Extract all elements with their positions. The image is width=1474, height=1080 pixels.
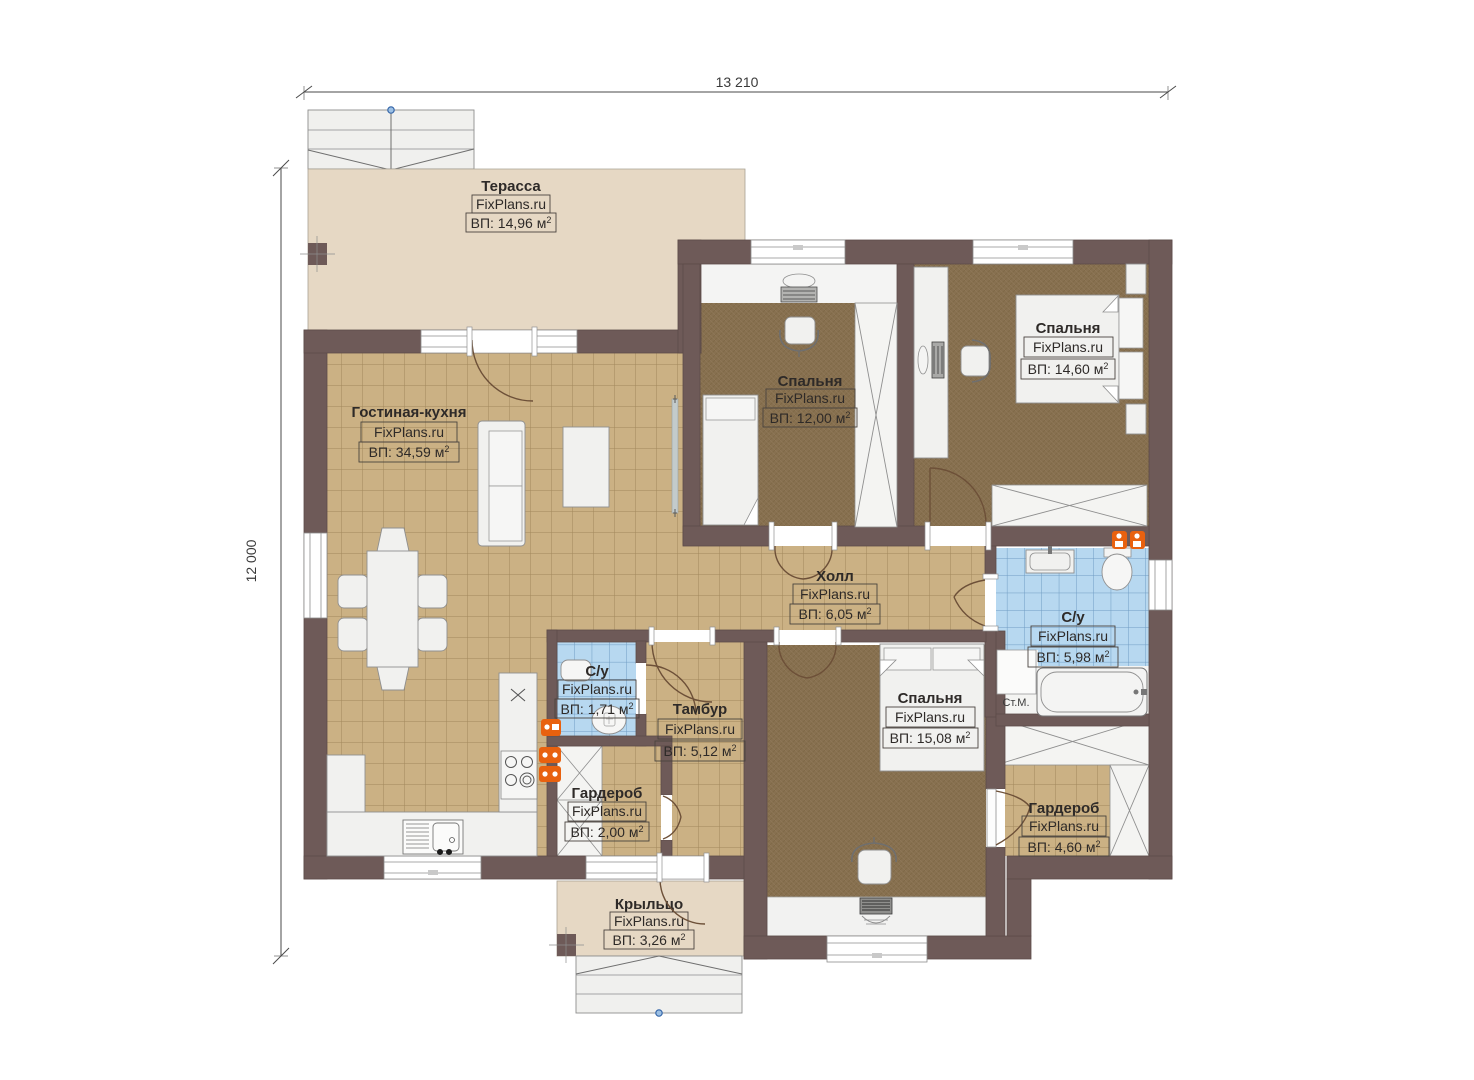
svg-text:ВП: 5,12 м2: ВП: 5,12 м2	[664, 743, 737, 759]
svg-text:ВП: 12,00 м2: ВП: 12,00 м2	[770, 410, 851, 426]
svg-text:FixPlans.ru: FixPlans.ru	[775, 390, 845, 406]
svg-text:Холл: Холл	[816, 568, 854, 585]
svg-text:ВП: 34,59 м2: ВП: 34,59 м2	[369, 444, 450, 460]
svg-text:FixPlans.ru: FixPlans.ru	[1029, 818, 1099, 834]
svg-text:FixPlans.ru: FixPlans.ru	[1038, 628, 1108, 644]
svg-text:FixPlans.ru: FixPlans.ru	[572, 803, 642, 819]
svg-text:ВП: 5,98 м2: ВП: 5,98 м2	[1037, 649, 1110, 665]
svg-text:Спальня: Спальня	[778, 373, 843, 390]
svg-text:Спальня: Спальня	[898, 690, 963, 707]
svg-text:Спальня: Спальня	[1036, 320, 1101, 337]
svg-text:ВП: 4,60 м2: ВП: 4,60 м2	[1028, 839, 1101, 855]
svg-text:13 210: 13 210	[716, 74, 759, 90]
svg-text:С/у: С/у	[1061, 609, 1085, 626]
svg-text:Ст.М.: Ст.М.	[1002, 697, 1029, 709]
svg-text:FixPlans.ru: FixPlans.ru	[665, 721, 735, 737]
svg-text:ВП: 1,71 м2: ВП: 1,71 м2	[561, 701, 634, 717]
svg-text:FixPlans.ru: FixPlans.ru	[1033, 339, 1103, 355]
svg-text:С/у: С/у	[585, 663, 609, 680]
svg-text:Гардероб: Гардероб	[572, 785, 643, 802]
svg-text:FixPlans.ru: FixPlans.ru	[614, 913, 684, 929]
svg-text:12 000: 12 000	[243, 539, 259, 582]
svg-text:FixPlans.ru: FixPlans.ru	[562, 681, 632, 697]
svg-text:ВП: 15,08 м2: ВП: 15,08 м2	[890, 730, 971, 746]
svg-text:Гардероб: Гардероб	[1029, 800, 1100, 817]
svg-text:ВП: 14,60 м2: ВП: 14,60 м2	[1028, 361, 1109, 377]
svg-text:FixPlans.ru: FixPlans.ru	[374, 424, 444, 440]
svg-text:Терасса: Терасса	[481, 178, 541, 195]
svg-text:Тамбур: Тамбур	[673, 701, 727, 718]
svg-text:Гостиная-кухня: Гостиная-кухня	[352, 404, 467, 421]
svg-text:ВП: 14,96 м2: ВП: 14,96 м2	[471, 215, 552, 231]
svg-text:ВП: 6,05 м2: ВП: 6,05 м2	[799, 606, 872, 622]
svg-text:FixPlans.ru: FixPlans.ru	[476, 196, 546, 212]
svg-text:ВП: 2,00 м2: ВП: 2,00 м2	[571, 824, 644, 840]
svg-text:FixPlans.ru: FixPlans.ru	[800, 586, 870, 602]
svg-text:ВП: 3,26 м2: ВП: 3,26 м2	[613, 932, 686, 948]
svg-text:FixPlans.ru: FixPlans.ru	[895, 709, 965, 725]
